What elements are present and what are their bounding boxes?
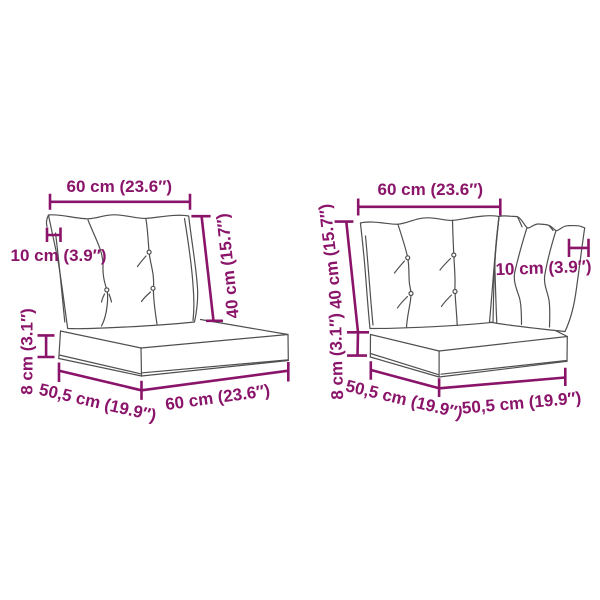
svg-text:60 cm (23.6″): 60 cm (23.6″) xyxy=(378,180,483,199)
svg-text:10 cm (3.9″): 10 cm (3.9″) xyxy=(495,257,592,279)
svg-text:60 cm (23.6″): 60 cm (23.6″) xyxy=(67,177,172,196)
svg-text:10 cm (3.9″): 10 cm (3.9″) xyxy=(10,246,106,265)
svg-text:8 cm (3.1″): 8 cm (3.1″) xyxy=(17,308,36,395)
svg-text:8 cm (3.1″): 8 cm (3.1″) xyxy=(326,313,347,400)
